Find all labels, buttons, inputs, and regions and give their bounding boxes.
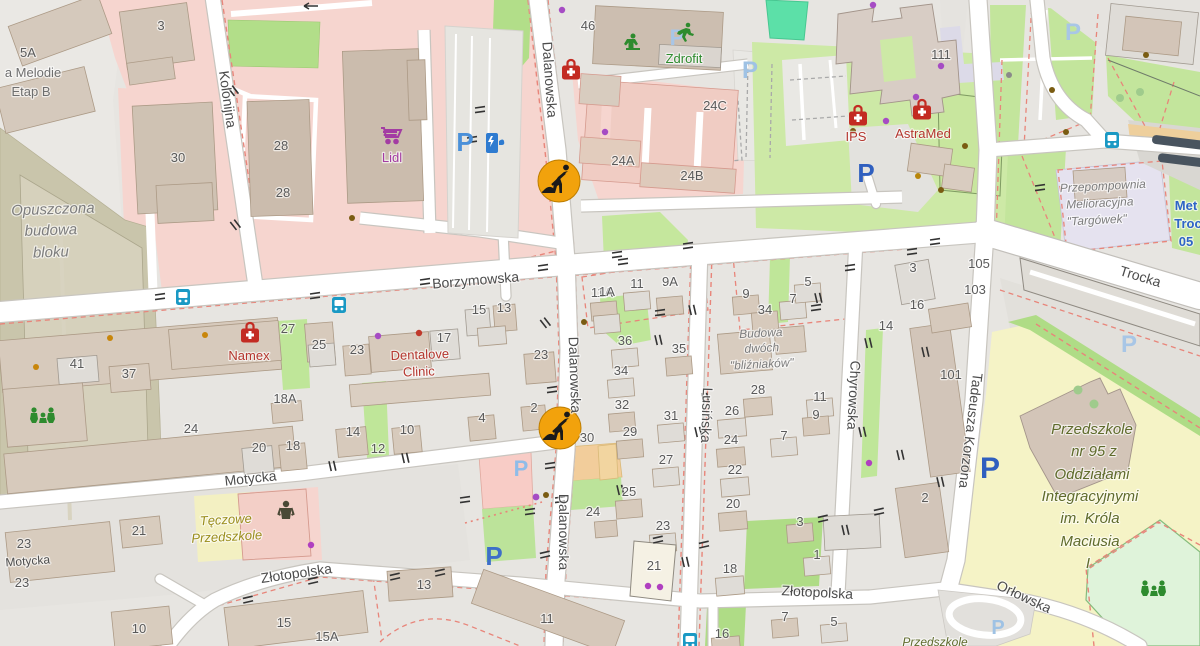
svg-text:24: 24 <box>724 432 738 447</box>
svg-text:37: 37 <box>122 366 136 381</box>
svg-text:14: 14 <box>346 424 360 439</box>
svg-text:2: 2 <box>530 400 537 415</box>
svg-text:im. Króla: im. Króla <box>1060 510 1119 527</box>
svg-text:5A: 5A <box>20 45 36 60</box>
svg-text:111: 111 <box>931 47 951 62</box>
svg-text:11: 11 <box>813 389 827 404</box>
svg-text:P: P <box>670 25 685 50</box>
svg-text:P: P <box>456 127 473 157</box>
svg-text:16: 16 <box>910 297 924 312</box>
svg-text:41: 41 <box>70 356 84 371</box>
svg-text:12: 12 <box>371 441 385 456</box>
svg-text:bloku: bloku <box>33 243 70 261</box>
svg-text:3: 3 <box>796 514 803 529</box>
svg-text:24: 24 <box>184 421 198 436</box>
svg-text:7: 7 <box>789 291 796 306</box>
svg-text:18: 18 <box>286 438 300 453</box>
svg-text:14: 14 <box>879 318 893 333</box>
svg-text:23: 23 <box>534 347 548 362</box>
svg-text:15: 15 <box>277 615 291 630</box>
svg-text:24: 24 <box>586 504 600 519</box>
svg-text:20: 20 <box>252 440 266 455</box>
svg-text:7: 7 <box>780 428 787 443</box>
svg-text:1: 1 <box>813 547 820 562</box>
svg-text:7: 7 <box>781 609 788 624</box>
svg-text:Tęczowe: Tęczowe <box>199 511 252 529</box>
svg-text:24B: 24B <box>680 168 703 183</box>
svg-text:28: 28 <box>751 382 765 397</box>
svg-text:AstraMed: AstraMed <box>895 126 951 141</box>
svg-text:24A: 24A <box>611 153 634 168</box>
svg-text:3: 3 <box>157 18 164 33</box>
svg-text:27: 27 <box>281 321 295 336</box>
svg-text:P: P <box>742 57 758 84</box>
svg-text:1A: 1A <box>599 284 615 299</box>
svg-text:P: P <box>1065 19 1081 46</box>
svg-text:P: P <box>991 617 1004 639</box>
svg-text:Dentalove: Dentalove <box>390 346 449 363</box>
svg-text:15A: 15A <box>315 629 338 644</box>
svg-text:Maciusia: Maciusia <box>1060 533 1119 550</box>
svg-text:25: 25 <box>622 484 636 499</box>
svg-text:Przedszkole: Przedszkole <box>1051 421 1133 438</box>
svg-text:31: 31 <box>664 408 678 423</box>
svg-text:I: I <box>1086 555 1090 572</box>
svg-text:Zdrofit: Zdrofit <box>666 51 703 66</box>
svg-text:P: P <box>980 452 1000 485</box>
svg-text:Integracyjnymi: Integracyjnymi <box>1042 488 1139 505</box>
svg-text:5: 5 <box>804 274 811 289</box>
svg-text:28: 28 <box>274 138 288 153</box>
svg-text:Dalanowska: Dalanowska <box>556 494 572 570</box>
svg-text:9: 9 <box>812 407 819 422</box>
svg-text:P: P <box>857 158 874 188</box>
svg-text:101: 101 <box>940 367 962 382</box>
svg-text:35: 35 <box>672 341 686 356</box>
svg-text:5: 5 <box>830 614 837 629</box>
svg-text:34: 34 <box>758 302 772 317</box>
svg-text:16: 16 <box>715 626 729 641</box>
svg-text:24C: 24C <box>703 98 727 113</box>
svg-text:23: 23 <box>15 575 29 590</box>
svg-text:Dalanowska: Dalanowska <box>566 336 585 413</box>
svg-text:17: 17 <box>437 330 451 345</box>
svg-text:10: 10 <box>400 422 414 437</box>
svg-text:3: 3 <box>909 260 916 275</box>
svg-text:IPS: IPS <box>846 129 867 144</box>
svg-text:P: P <box>485 541 502 571</box>
svg-text:21: 21 <box>132 523 146 538</box>
svg-text:32: 32 <box>615 397 629 412</box>
svg-text:18A: 18A <box>273 391 296 406</box>
svg-text:Met: Met <box>1175 198 1198 213</box>
svg-text:dwóch: dwóch <box>744 340 780 356</box>
svg-text:23: 23 <box>656 518 670 533</box>
svg-text:P: P <box>514 456 529 481</box>
svg-text:18: 18 <box>723 561 737 576</box>
svg-text:34: 34 <box>614 363 628 378</box>
svg-text:nr 95 z: nr 95 z <box>1071 443 1117 460</box>
svg-text:30: 30 <box>171 150 185 165</box>
svg-text:11: 11 <box>540 611 554 626</box>
svg-text:23: 23 <box>350 342 364 357</box>
svg-text:21: 21 <box>647 558 661 573</box>
svg-text:05: 05 <box>1179 234 1193 249</box>
svg-text:27: 27 <box>659 452 673 467</box>
svg-text:Troc: Troc <box>1174 216 1200 231</box>
svg-text:4: 4 <box>478 410 485 425</box>
svg-text:10: 10 <box>132 621 146 636</box>
svg-text:P: P <box>1121 331 1137 358</box>
svg-text:Etap B: Etap B <box>11 84 50 99</box>
svg-text:25: 25 <box>312 337 326 352</box>
svg-text:22: 22 <box>728 462 742 477</box>
svg-text:23: 23 <box>17 536 31 551</box>
svg-text:46: 46 <box>581 18 595 33</box>
svg-text:30: 30 <box>580 430 594 445</box>
svg-text:Przedszkole: Przedszkole <box>902 635 968 646</box>
svg-text:103: 103 <box>964 282 986 297</box>
svg-text:Namex: Namex <box>228 348 270 363</box>
svg-text:13: 13 <box>497 300 511 315</box>
svg-text:budowa: budowa <box>24 221 77 240</box>
svg-text:15: 15 <box>472 302 486 317</box>
svg-text:2: 2 <box>921 490 928 505</box>
svg-text:11: 11 <box>630 276 644 291</box>
svg-text:26: 26 <box>725 403 739 418</box>
svg-text:Budowa: Budowa <box>739 325 783 341</box>
svg-text:Oddziałami: Oddziałami <box>1054 466 1130 483</box>
svg-text:29: 29 <box>623 424 637 439</box>
svg-text:Lusińska: Lusińska <box>698 387 716 443</box>
svg-text:Lidl: Lidl <box>382 150 402 165</box>
svg-text:13: 13 <box>417 577 431 592</box>
svg-text:9A: 9A <box>662 274 678 289</box>
svg-text:9: 9 <box>742 286 749 301</box>
svg-text:Clinic: Clinic <box>403 363 436 379</box>
svg-text:20: 20 <box>726 496 740 511</box>
svg-text:105: 105 <box>968 256 990 271</box>
svg-text:36: 36 <box>618 333 632 348</box>
svg-text:28: 28 <box>276 185 290 200</box>
svg-text:Opuszczona: Opuszczona <box>11 200 95 220</box>
svg-text:a Melodie: a Melodie <box>5 65 61 80</box>
